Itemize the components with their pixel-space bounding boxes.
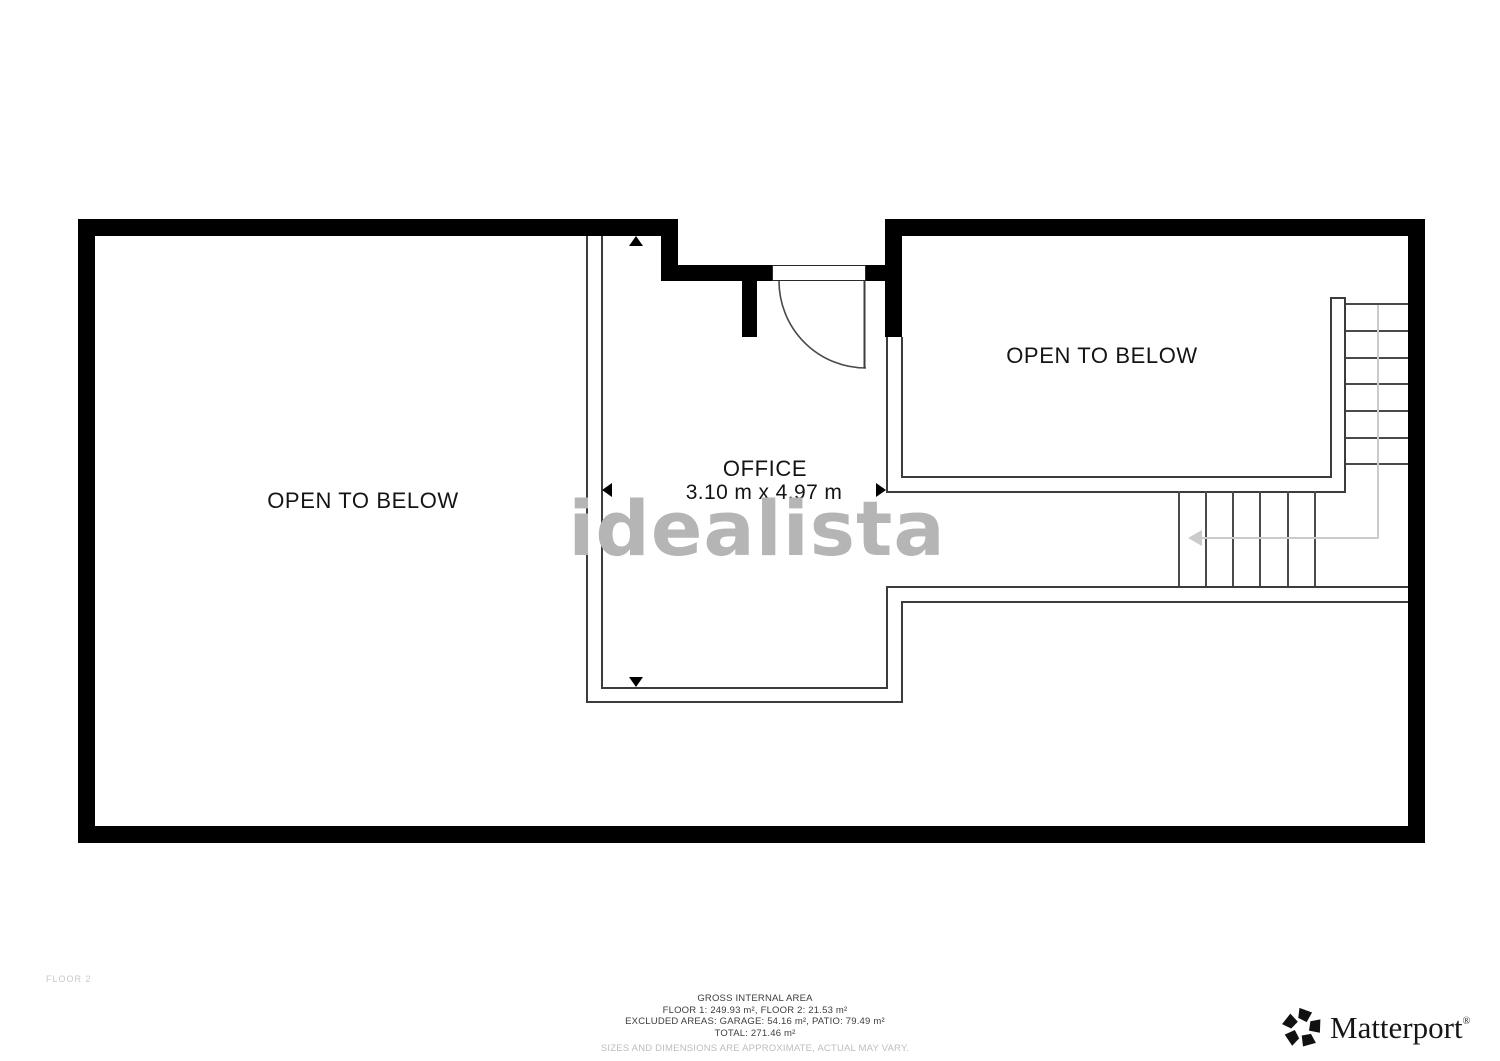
stair-boundary-line xyxy=(1330,297,1332,478)
stair-walk-line xyxy=(1202,537,1378,539)
open-to-below-left-label: OPEN TO BELOW xyxy=(213,488,513,514)
door-fill-right xyxy=(866,265,885,281)
area-summary-title: GROSS INTERNAL AREA xyxy=(450,993,1060,1005)
area-summary-floors: FLOOR 1: 249.93 m², FLOOR 2: 21.53 m² xyxy=(450,1005,1060,1017)
room-bottom-wall-line xyxy=(901,476,1332,478)
office-wall-line xyxy=(601,687,886,689)
door-frame xyxy=(772,265,866,281)
floorplan-canvas: OPEN TO BELOW OPEN TO BELOW OFFICE 3.10 … xyxy=(0,0,1500,1061)
matterport-logo: Matterport® xyxy=(1281,1007,1470,1049)
hall-wall-line xyxy=(886,586,1408,588)
outer-wall-top-left xyxy=(78,219,678,236)
floor-number-label: FLOOR 2 xyxy=(46,974,92,984)
hall-wall-line xyxy=(901,601,1408,603)
stair-tread xyxy=(1178,491,1180,586)
outer-wall-right xyxy=(1408,219,1425,843)
idealista-watermark: idealista xyxy=(552,484,962,573)
area-summary: GROSS INTERNAL AREA FLOOR 1: 249.93 m², … xyxy=(450,993,1060,1055)
stair-boundary-line xyxy=(1330,297,1346,299)
area-summary-disclaimer: SIZES AND DIMENSIONS ARE APPROXIMATE, AC… xyxy=(450,1043,1060,1055)
area-summary-total: TOTAL: 271.46 m² xyxy=(450,1028,1060,1040)
door-jamb-stub xyxy=(742,281,757,337)
outer-wall-top-right xyxy=(885,219,1425,236)
office-wall-line xyxy=(601,236,603,687)
area-summary-excluded: EXCLUDED AREAS: GARAGE: 54.16 m², PATIO:… xyxy=(450,1016,1060,1028)
door-swing-arc xyxy=(772,281,868,373)
office-name-label: OFFICE xyxy=(615,456,915,482)
matterport-pinwheel-icon xyxy=(1281,1007,1323,1049)
matterport-name: Matterport xyxy=(1330,1010,1463,1045)
dimension-arrow-down-icon xyxy=(629,677,643,687)
dimension-arrow-up-icon xyxy=(629,236,643,246)
alcove-wall-horizontal xyxy=(661,265,772,281)
stair-walk-line xyxy=(1377,305,1379,539)
stair-direction-arrow-icon xyxy=(1188,530,1202,546)
office-wall-line xyxy=(886,586,888,689)
matterport-wordmark: Matterport® xyxy=(1330,1010,1470,1046)
office-wall-line xyxy=(586,701,903,703)
office-wall-line xyxy=(586,236,588,701)
outer-wall-left xyxy=(78,219,95,843)
registered-mark: ® xyxy=(1463,1016,1471,1027)
office-right-column xyxy=(885,219,902,337)
outer-wall-bottom xyxy=(78,826,1425,843)
office-wall-line xyxy=(901,601,903,701)
open-to-below-right-label: OPEN TO BELOW xyxy=(952,343,1252,369)
